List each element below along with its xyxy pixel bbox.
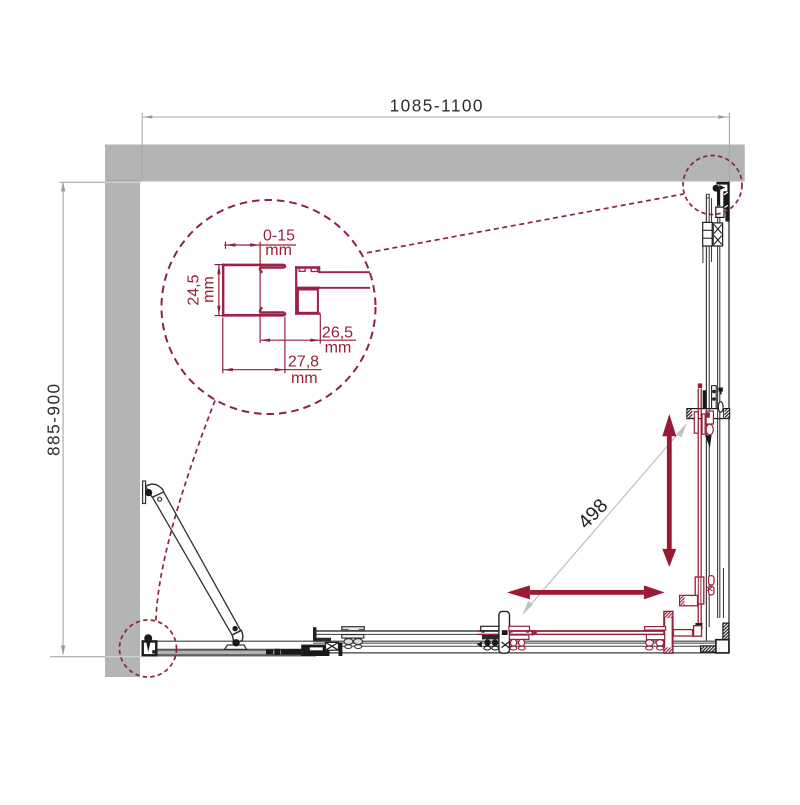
svg-text:1085-1100: 1085-1100 (390, 96, 484, 116)
svg-text:885-900: 885-900 (44, 382, 64, 456)
svg-text:mm: mm (201, 276, 218, 303)
svg-text:27,8: 27,8 (288, 353, 319, 370)
svg-text:mm: mm (325, 340, 352, 357)
svg-text:mm: mm (265, 242, 292, 259)
svg-text:mm: mm (291, 370, 318, 387)
